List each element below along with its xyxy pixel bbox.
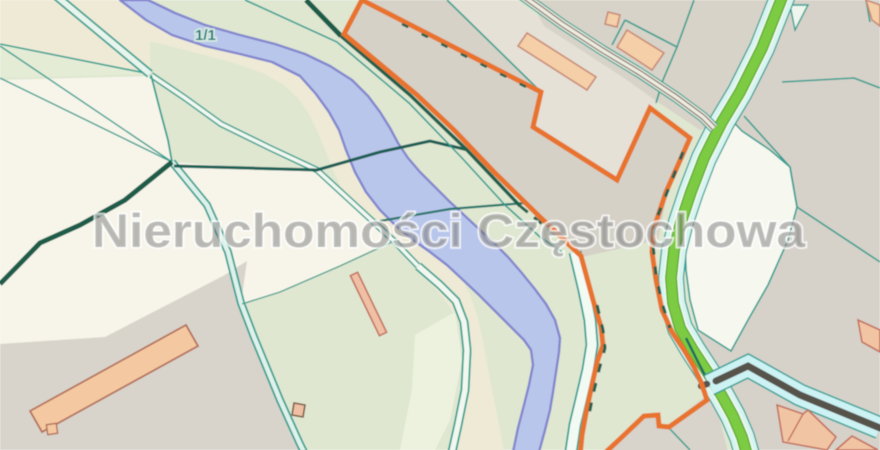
svg-text:1/1: 1/1 xyxy=(195,27,216,44)
svg-text:Nieruchomości Częstochowa: Nieruchomości Częstochowa xyxy=(92,204,806,257)
